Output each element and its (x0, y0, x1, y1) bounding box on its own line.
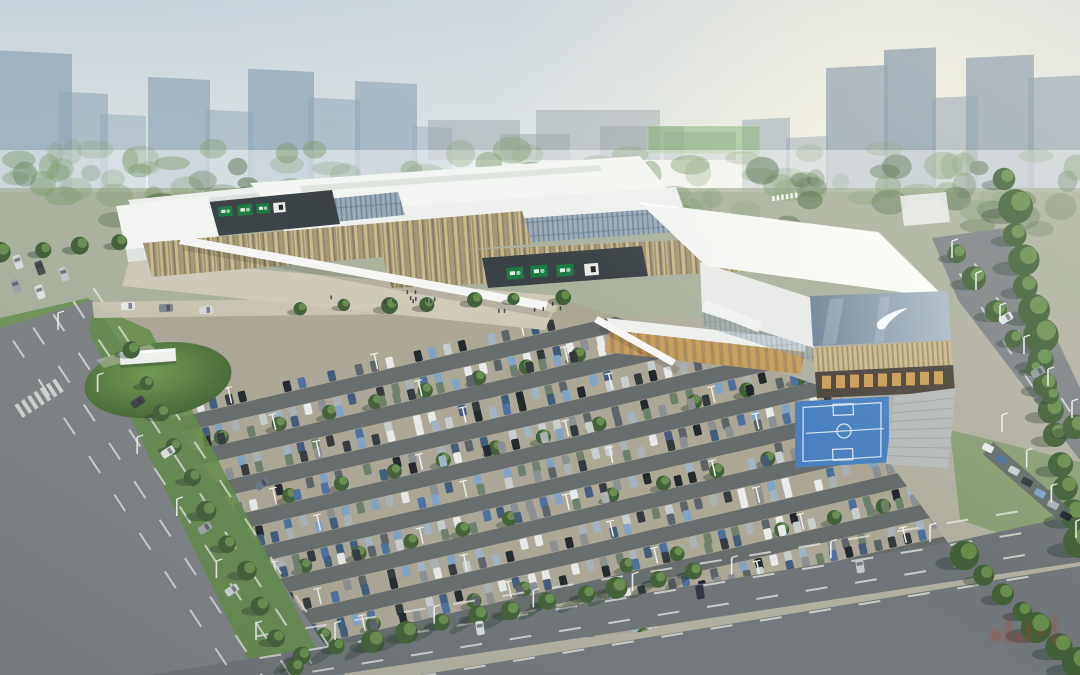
light-tone-overlay (0, 0, 1080, 675)
aerial-rendering-canvas (0, 0, 1080, 675)
rendering-stage (0, 0, 1080, 675)
